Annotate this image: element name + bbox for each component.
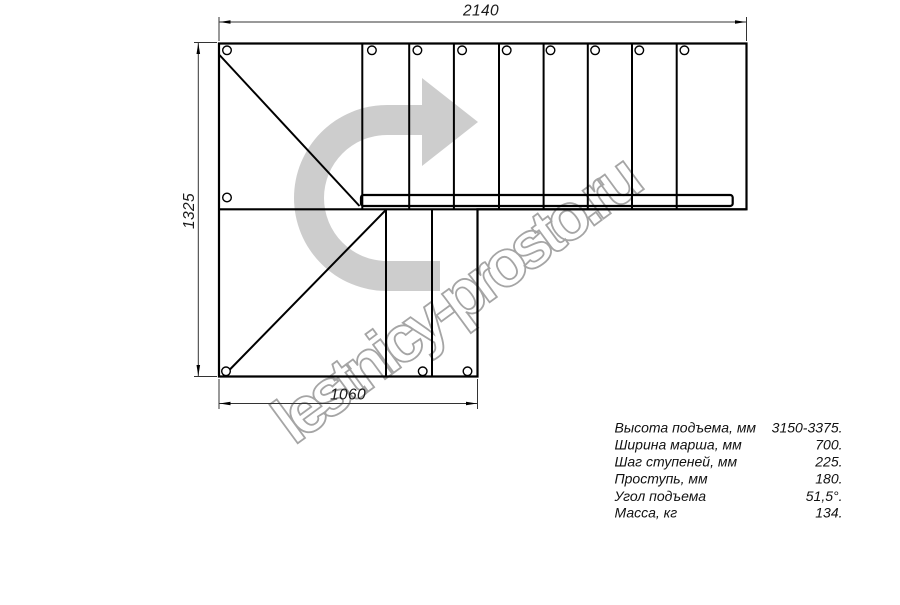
svg-text:1060: 1060 — [330, 387, 366, 404]
svg-text:225.: 225. — [814, 454, 842, 470]
svg-text:3150-3375.: 3150-3375. — [772, 420, 843, 436]
svg-text:180.: 180. — [815, 471, 842, 487]
svg-text:1325: 1325 — [181, 193, 198, 229]
svg-text:2140: 2140 — [462, 3, 499, 20]
svg-text:51,5°.: 51,5°. — [806, 488, 843, 504]
svg-text:700.: 700. — [815, 437, 842, 453]
svg-text:Проступь, мм: Проступь, мм — [615, 471, 709, 487]
svg-text:Шаг ступеней, мм: Шаг ступеней, мм — [615, 454, 738, 470]
svg-text:Ширина марша, мм: Ширина марша, мм — [615, 437, 743, 453]
svg-text:Высота подъема, мм: Высота подъема, мм — [615, 420, 757, 436]
svg-text:134.: 134. — [815, 505, 842, 521]
svg-text:Масса, кг: Масса, кг — [615, 505, 678, 521]
svg-text:Угол подъема: Угол подъема — [614, 488, 707, 504]
